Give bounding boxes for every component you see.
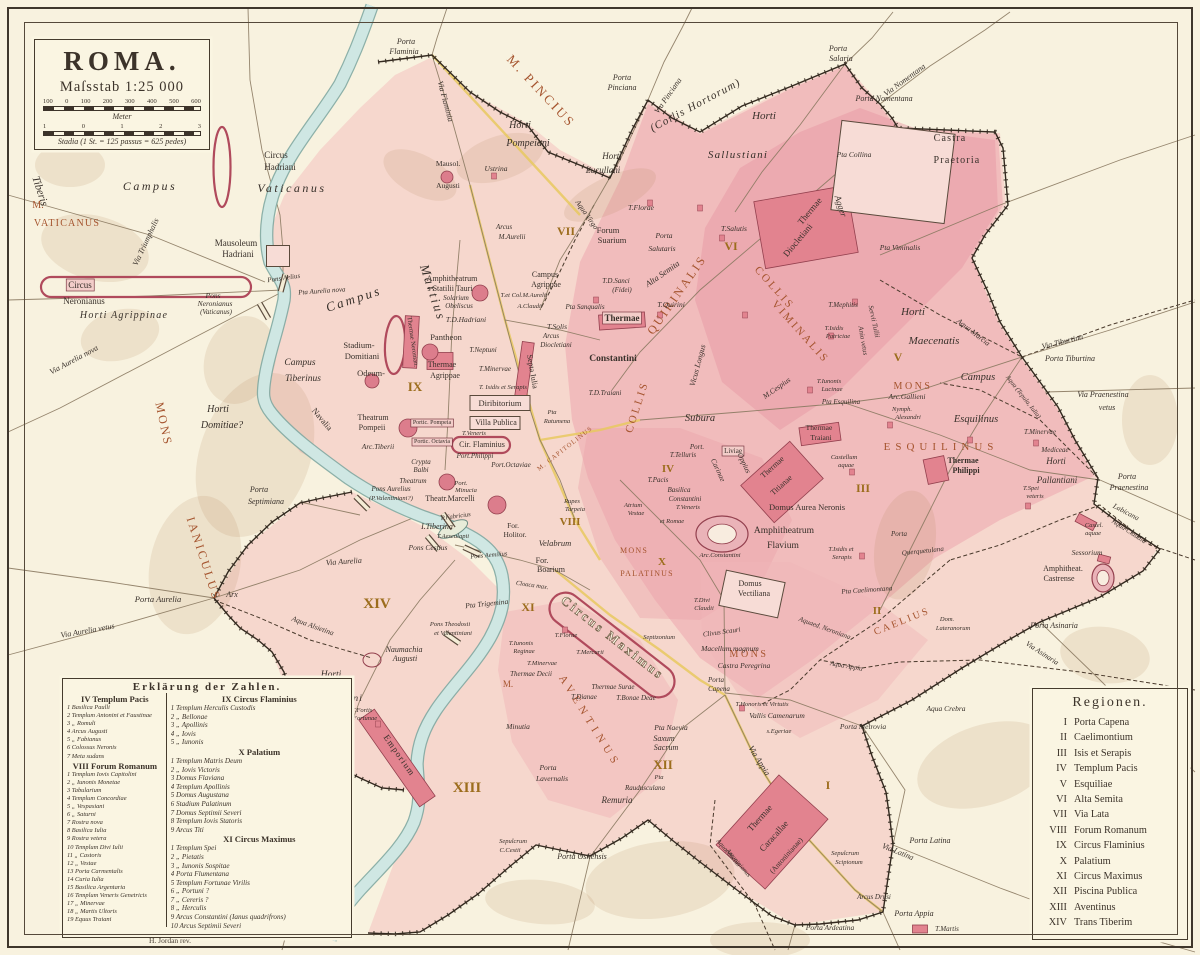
map-label-group: IX [408,379,423,394]
map-label: Nymph. [891,406,912,413]
map-label: Sacrum [654,743,679,752]
map-label: Pantheon [430,332,462,342]
map-label-group: aquae [838,462,854,469]
map-label-group: Subura [685,413,715,424]
map-label: Vestae [628,510,645,517]
legend-item: 2 „ Bellonae [171,713,348,722]
legend-item: 13 Porta Carmentalis [67,868,163,876]
ruler-tick: 2 [159,124,162,130]
map-label: Porta [538,763,556,772]
map-label-group: I.Tiberina [420,522,453,531]
map-label: XIII [453,780,482,796]
map-label: Obeliscus [445,302,473,310]
legend-item: 6 „ Saturni [67,811,163,819]
map-label: Balbi [413,466,428,474]
map-label: Constantini [589,354,637,364]
map-label-group: VI [724,239,738,253]
credit-line: H. Jordan rev. [110,936,230,945]
map-label: et Romae [660,518,684,525]
map-label-group: Praetoria [934,155,981,166]
legend-section-heading: IX Circus Flaminius [171,694,348,704]
map-label: Pallantiani [1036,475,1078,485]
map-label: Boarium [537,565,566,574]
map-label-group: Sepulcrum [831,850,859,857]
map-label-group: III [856,481,870,495]
region-numeral: II [1033,730,1074,745]
stadia-bar [43,131,201,136]
map-label-group: Agrippae [531,280,561,289]
legend-item: 11 „ Castoris [67,852,163,860]
ruler-tick: 0 [65,99,68,105]
map-label: II [873,605,882,617]
map-label: Amphitheat. [1043,564,1083,573]
legend-section-heading: X Palatium [171,747,348,757]
map-label-group: Campus [284,358,315,368]
map-label-group: Via Praenestina [1077,390,1128,399]
map-label-group: Pallantiani [1036,475,1078,485]
map-label-group: Flavium [767,541,799,551]
map-label-group: Horti [1045,456,1066,466]
map-label: Domus Aurea Neronis [769,502,845,512]
map-label: T.Mercurii [576,649,604,656]
map-label: PALATINUS [620,569,674,578]
map-label: T.Minervae [479,365,511,373]
map-label-group: Minucia [454,487,477,494]
map-label: Porta Nomentana [854,94,912,103]
map-label: T.Bonae Deae [616,694,656,702]
map-label-group: T.Veneris [462,430,486,437]
map-label-group: I [826,778,831,792]
ruler-tick: 100 [81,99,91,105]
map-label-group: Basilica [668,486,691,494]
map-label: (Fidei) [612,286,632,294]
map-label: Castellum [831,454,858,461]
map-label-group: Ustrina [485,164,508,173]
map-label: T.Iunonis [817,378,842,385]
map-label: T.Salutis [721,224,747,233]
ruler-tick: 300 [125,99,135,105]
map-label: T.Isidis [825,325,844,332]
map-label-group: Porta Ostiensis [556,852,607,861]
map-label-group: Thermae [603,312,642,324]
ruler-tick: 1 [43,124,46,130]
legend-item: 3 Domus Flaviana [171,774,348,783]
map-label: Philippi [952,466,980,475]
map-label: Sallustiani [708,149,768,161]
region-name: Circus Flaminius [1074,838,1145,853]
map-label-group: XIII [453,780,482,796]
map-label: Villa Publica [475,418,517,427]
map-label: Porta [396,37,415,46]
monument-circle [472,285,488,301]
map-label-group: Porta Metrovia [839,722,886,731]
map-label: Porta Asinaria [1029,621,1078,630]
legend-item: 1 Templum Spei [171,844,348,853]
map-label-group: Pta [546,409,556,416]
map-label-group: Castellum [831,454,858,461]
map-label-group: s.Egeriae [767,728,792,735]
legend-item: 4 Arcus Augusti [67,728,163,736]
temple-marker [860,553,865,559]
map-label-group: T.Martis [935,925,959,933]
map-label: Cir. Flaminius [459,440,505,449]
map-label: Porta [612,73,631,82]
map-label: Porta [1117,472,1136,481]
map-label-group: MONS [894,381,933,392]
map-label: Ratumena [543,418,570,425]
map-label-group: Port. [689,443,704,451]
map-label-group: VII [557,224,575,238]
monument-block [913,925,928,933]
map-label-group: Porta [612,73,631,82]
map-label: Diocletiani [539,341,572,349]
map-label-group: Balbi [413,466,428,474]
map-label: Tarpeia [565,506,585,513]
map-label-group: Philippi [952,466,980,475]
map-label-group: M. [503,679,513,689]
map-label-group: Porta [707,676,724,684]
region-row: IPorta Capena [1033,715,1187,730]
map-label: Horti [206,404,229,415]
map-label-group: Domus [738,579,761,588]
map-label-group: Solarium [443,294,469,302]
map-label: T.Veneris [462,430,486,437]
map-label-group: Circus [66,279,94,291]
map-label: (Vaticanus) [200,308,233,316]
map-label: Arcus [495,223,512,231]
map-label-group: Pantheon [430,332,462,342]
map-label: XI [521,600,535,614]
map-label-group: Salutaris [648,244,675,253]
map-label-group: Minutia [505,722,530,731]
map-label-group: T.Dianae [571,693,597,701]
map-label-group: Horti [751,110,776,122]
map-label: Domus [738,579,761,588]
region-row: VIAlta Semita [1033,792,1187,807]
map-label: Mausol. [436,159,461,168]
region-name: Palatium [1074,854,1111,869]
map-label-group: Sacrum [654,743,679,752]
map-label-group: Arc.Tiberii [361,442,394,451]
region-name: Esquiliae [1074,777,1112,792]
legend-item: 3 „ Romuli [67,720,163,728]
map-label-group: Porta [538,763,556,772]
legend-column-1: IV Templum Pacis1 Basilica Paulli2 Templ… [63,693,167,927]
map-label: Salaria [829,54,853,63]
map-label: Tiberinus [285,374,321,384]
map-label: Lateranorum [935,625,971,632]
map-label-group: Porta Asinaria [1029,621,1078,630]
map-label: Sessorium [1072,548,1103,557]
map-label-group: T.Florae [555,632,578,639]
regionen-box: Regionen. IPorta CapenaIICaelimontiumIII… [1032,688,1188,940]
map-label-group: Constantini [589,354,637,364]
map-label-group: Claudii [694,605,714,612]
region-numeral: XI [1033,869,1074,884]
map-label: Velabrum [539,538,572,548]
map-label-group: Ratumena [543,418,570,425]
map-label-group: Obeliscus [445,302,473,310]
map-label: Arc.Tiberii [361,442,394,451]
meter-ruler: 1000100200300400500600 Meter [43,99,201,121]
map-label: Vallis Camenarum [749,711,805,720]
region-row: IICaelimontium [1033,730,1187,745]
map-label: M. [32,200,43,211]
region-numeral: I [1033,715,1074,730]
map-label: Portic. Pompeia [413,420,452,426]
temple-marker [1034,440,1039,446]
map-label-group: Diocletiani [539,341,572,349]
map-label: Porta [249,485,268,494]
map-label: Via Praenestina [1077,390,1128,399]
map-label-group: Patriciae [825,333,850,340]
map-label: MONS [894,381,933,392]
map-label-group: Augusti [436,181,460,190]
map-label: Hadriani [264,162,296,172]
map-label: Pompeii [359,423,386,432]
temple-marker [698,205,703,211]
map-label: Pons Theodosii [429,621,470,628]
map-label-group: Sepulcrum [499,838,527,845]
map-label: Lavernalis [535,774,568,783]
region-name: Piscina Publica [1074,884,1137,899]
map-label-group: Arcus [495,223,512,231]
map-label-group: Tiberinus [285,374,321,384]
map-label-group: Campus [961,372,995,383]
map-label: Pta Naevia [653,723,688,732]
map-label-group: Porta Latina [908,836,950,845]
map-label: Porta Appia [893,909,933,918]
region-numeral: IX [1033,838,1074,853]
map-label: Horti Agrippinae [79,310,168,321]
region-name: Caelimontium [1074,730,1133,745]
map-label: Pompeiani [505,138,550,149]
map-label-group: T.et Col.M.Aurelii [501,292,548,299]
ruler-tick: 500 [169,99,179,105]
map-label: MONS [620,546,648,555]
map-label: Amphitheatrum [754,526,815,536]
legend-item: 18 „ Martis Ultoris [67,908,163,916]
map-label: Horti [751,110,776,122]
map-label: Salutaris [648,244,675,253]
map-label: Thermae [605,313,640,323]
map-label: Mediceae [1040,446,1068,454]
map-label-group: V [894,350,903,364]
map-label-group: Boarium [537,565,566,574]
map-label: Thermae Decii [510,670,552,678]
region-numeral: IV [1033,761,1074,776]
legend-section-heading: IV Templum Pacis [67,694,163,704]
map-label-group: Villa Publica [475,418,517,427]
map-label: Domitiani [345,351,380,361]
map-label-group: Forum [597,225,620,235]
map-label-group: Flaminia [388,47,418,56]
map-label-group: T.Iunonis [817,378,842,385]
map-label: Port. [453,480,468,487]
legend-item: 6 Stadium Palatinum [171,800,348,809]
map-label-group: Esquilinus [953,414,998,425]
map-label-group: T.Isidis et [828,546,853,553]
map-label-group: et Valentiniani [434,630,472,637]
legend-item: 4 „ Iovis [171,730,348,739]
map-label: IX [408,379,423,394]
map-label: Pons Cestius [408,543,448,552]
legend-item: 16 Templum Veneris Genetricis [67,892,163,900]
map-label: Flavium [767,541,799,551]
map-label-group: Thermae [947,456,979,465]
temple-marker [850,469,855,475]
ruler-tick: 400 [147,99,157,105]
map-label: Saxum [653,734,675,743]
region-numeral: VII [1033,807,1074,822]
map-label-group: vetus [1099,403,1115,412]
map-label-group: T.Mercurii [576,649,604,656]
map-label-group: Domitiani [345,351,380,361]
map-label-group: Pons Cestius [408,543,448,552]
legend-column-2: IX Circus Flaminius1 Templum Herculis Cu… [167,693,351,927]
map-label-group: Salaria [829,54,853,63]
map-label: Praenestina [1109,483,1149,492]
legend-item: 5 „ Fabianus [67,736,163,744]
map-label: Neronianus [197,299,233,308]
legend-item: 5 „ Iunonis [171,738,348,747]
map-label: Capena [708,685,730,693]
map-label-group: (Vaticanus) [200,308,233,316]
region-name: Templum Pacis [1074,761,1138,776]
map-label-group: IV [662,463,674,475]
map-label: Campus [284,358,315,368]
map-label-group: T.Bonae Deae [616,694,656,702]
map-title: ROMA. [35,46,209,77]
map-label: Rupes [563,498,580,505]
map-label-group: Arx [225,590,238,599]
map-label-group: Neronianus [197,299,233,308]
map-label: Thermae [947,456,979,465]
map-label-group: Raudusculana [624,784,666,792]
map-label: Pta [546,409,556,416]
map-label: Stadium- [343,340,374,350]
map-label: Raudusculana [624,784,666,792]
map-label: T.D.Sanci [602,277,630,285]
map-label-group: Hadriani [264,162,296,172]
map-label: Traiani [810,433,831,442]
map-label-group: Amphitheatrum [754,526,815,536]
map-label: Pons Aurelius [370,485,410,493]
map-label: IV [662,463,674,475]
region-numeral: III [1033,746,1074,761]
meter-label: Meter [43,112,201,121]
map-label-group: Campus [532,270,558,279]
map-label-group: Castra [934,133,967,144]
map-label-group: M. [32,200,43,211]
legend-item: 14 Curia Iulia [67,876,163,884]
map-label-group: Sallustiani [708,149,768,161]
legend-item: 12 „ Vestae [67,860,163,868]
legend-item: 4 Porta Flumentana [171,870,348,879]
map-label-group: T.Minervae [479,365,511,373]
map-label-group: Pta Viminalis [879,243,921,252]
map-label-group: PALATINUS [620,569,674,578]
map-label: Pta Esquilina [821,398,861,406]
map-label: Holitor. [503,530,526,539]
map-label: T.Solis [547,322,567,331]
region-numeral: V [1033,777,1074,792]
map-label: Neronianus [63,296,105,306]
map-label: Thermae Surae [592,683,635,691]
map-label-group: T.Veneris [676,504,700,511]
map-label-group: Pta Naevia [653,723,688,732]
legend-item: 2 „ Iovis Victoris [171,766,348,775]
legend-columns: IV Templum Pacis1 Basilica Paulli2 Templ… [63,693,351,927]
map-label: Flaminia [388,47,418,56]
monument-circle [439,474,455,490]
map-label-group: Capena [708,685,730,693]
map-label-group: Aqua Crebra [925,704,965,713]
map-label-group: Castra Peregrina [718,661,771,670]
map-label-group: Cir. Flaminius [459,440,505,449]
legend-item: 17 „ Minervae [67,900,163,908]
region-name: Trans Tiberim [1074,915,1132,930]
map-label-group: Porta Ardeatina [805,923,855,932]
map-label: T.Isidis et [828,546,853,553]
map-label-group: Castrense [1043,574,1075,583]
map-label: M.Aurelii [498,233,526,241]
map-label: Septizonium [643,634,675,641]
map-label: Campus [123,179,177,193]
map-label-group: Pons Aurelius [370,485,410,493]
map-label-group: Septimiana [248,497,284,506]
map-label: Horti [900,306,925,318]
map-label-group: Arcus Drusi [856,893,891,901]
map-label-group: T.D.Sanci [602,277,630,285]
map-label-group: Scipionum [835,859,863,866]
map-label: Domitiae? [200,420,243,431]
map-label-group: Tarpeia [565,506,585,513]
map-label: C.Cestii [499,847,520,854]
map-label-group: For. [507,521,519,530]
legend-item: 10 Arcus Septimii Severi [171,922,348,931]
map-label: T.Mephitis [828,301,858,309]
map-label-group: X [658,556,666,568]
legend-item: 8 „ Herculis [171,904,348,913]
legend-item: 5 Templum Fortunae Virilis [171,879,348,888]
map-label: Port.Octaviae [490,461,530,469]
region-row: VEsquiliae [1033,777,1187,792]
map-label-group: Theatr.Marcelli [425,494,475,503]
map-label: Port.Philippi [456,452,494,460]
map-label-group: Serapis [832,554,852,561]
legend-box: Erklärung der Zahlen. IV Templum Pacis1 … [62,678,352,938]
map-label: T.Pacis [648,476,669,484]
legend-item: 9 Arcus Constantini (Ianus quadrifrons) [171,913,348,922]
map-label-group: Lucullani [585,165,621,175]
region-name: Forum Romanum [1074,823,1147,838]
map-label: Sepulcrum [499,838,527,845]
map-label-group: Macellum magnum [700,644,759,653]
map-label-group: Thermae Decii [510,670,552,678]
map-label-group: Mausol. [436,159,461,168]
map-label: T.Dianae [571,693,597,701]
map-label-group: II [873,605,882,617]
stadia-ruler: 10123 Stadia (1 St. = 125 passus = 625 p… [43,124,201,146]
map-label: Port. [689,443,704,451]
map-label-group: (Fidei) [612,286,632,294]
legend-item: 8 Basilica Iulia [67,827,163,835]
monument-circle [488,496,506,514]
map-label-group: Septizonium [643,634,675,641]
map-label-group: Pons Theodosii [429,621,470,628]
map-label-group: Thermae Surae [592,683,635,691]
